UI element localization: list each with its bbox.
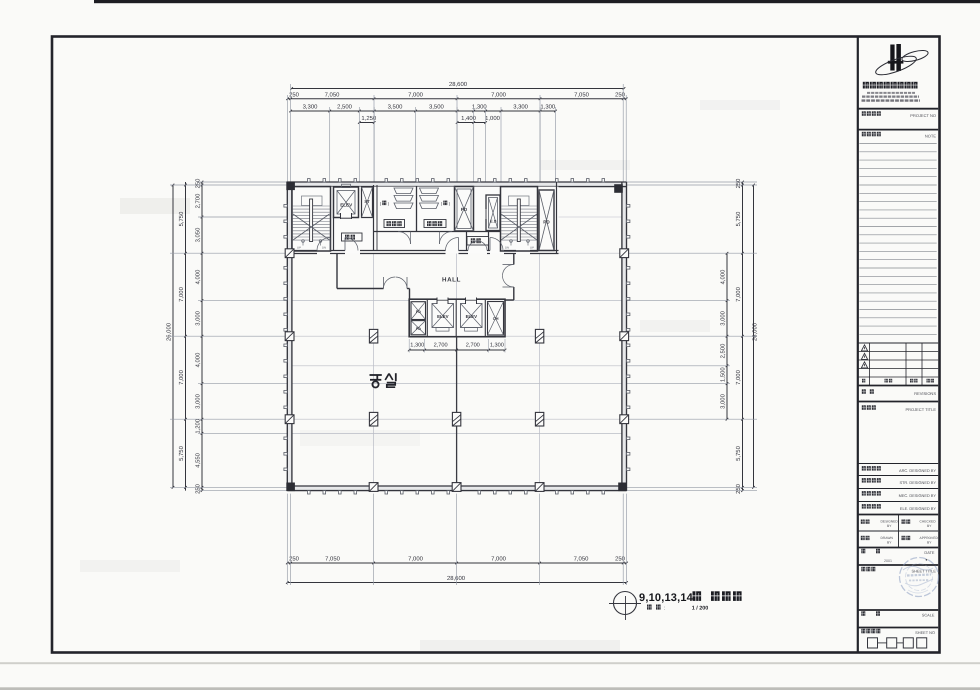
svg-text:PROJECT TITLE: PROJECT TITLE — [905, 407, 936, 412]
svg-text:DESIGNED: DESIGNED — [881, 520, 899, 524]
svg-text:2,500: 2,500 — [720, 343, 727, 358]
svg-text:7,050: 7,050 — [574, 91, 589, 98]
svg-text:1,250: 1,250 — [361, 115, 376, 122]
svg-text:PD: PD — [461, 207, 468, 212]
svg-text:250: 250 — [735, 178, 742, 189]
svg-text:3,000: 3,000 — [720, 393, 727, 408]
svg-text:7,000: 7,000 — [735, 286, 742, 301]
svg-text:UP: UP — [530, 246, 534, 250]
svg-text:REVISIONS: REVISIONS — [914, 391, 936, 396]
svg-text:2,700: 2,700 — [434, 343, 448, 349]
svg-text:2,700: 2,700 — [466, 343, 480, 349]
svg-text:7,000: 7,000 — [735, 369, 742, 384]
svg-text:STR. DESIGNED BY: STR. DESIGNED BY — [899, 480, 936, 485]
svg-text:4,550: 4,550 — [195, 452, 202, 467]
svg-text:250: 250 — [615, 556, 626, 563]
svg-text:UP: UP — [297, 246, 301, 250]
svg-text:1 / 200: 1 / 200 — [692, 606, 709, 612]
svg-text:ELE. DESIGNED BY: ELE. DESIGNED BY — [900, 506, 937, 511]
svg-text:250: 250 — [615, 91, 626, 98]
svg-text:7,000: 7,000 — [408, 91, 423, 98]
svg-text:2001: 2001 — [884, 559, 892, 563]
svg-text:1,000: 1,000 — [485, 115, 500, 122]
svg-text:4,000: 4,000 — [195, 352, 202, 367]
svg-text:26,000: 26,000 — [751, 322, 758, 341]
svg-text:E.D: E.D — [490, 219, 497, 223]
svg-text:3,000: 3,000 — [195, 310, 202, 325]
svg-text:5,750: 5,750 — [735, 445, 742, 460]
svg-text:1,300: 1,300 — [410, 343, 424, 349]
svg-text:ELEV: ELEV — [466, 314, 478, 319]
svg-text:5,750: 5,750 — [178, 445, 185, 460]
svg-text:7,050: 7,050 — [574, 556, 589, 563]
svg-text:PD: PD — [416, 327, 421, 331]
svg-text:ELEV: ELEV — [437, 314, 449, 319]
svg-text:250: 250 — [195, 178, 202, 189]
svg-text:3,050: 3,050 — [195, 227, 202, 242]
svg-text:SCALE: SCALE — [922, 613, 935, 618]
svg-text:7,050: 7,050 — [325, 556, 340, 563]
svg-text:1,200: 1,200 — [195, 418, 202, 433]
svg-text:1,500: 1,500 — [720, 367, 727, 382]
svg-text:250: 250 — [195, 483, 202, 494]
svg-text:5,750: 5,750 — [735, 211, 742, 226]
svg-text:CHECKED: CHECKED — [920, 520, 937, 524]
svg-text:4,000: 4,000 — [195, 269, 202, 284]
svg-text:1,300: 1,300 — [472, 104, 487, 111]
svg-text:2,500: 2,500 — [337, 104, 352, 111]
svg-text:7,000: 7,000 — [491, 556, 506, 563]
svg-text:PROJECT NO: PROJECT NO — [910, 113, 936, 118]
svg-text:DN: DN — [322, 246, 326, 250]
svg-text:3,000: 3,000 — [720, 310, 727, 325]
svg-text:ST: ST — [364, 199, 370, 204]
svg-text:DATE: DATE — [924, 550, 934, 555]
svg-text:4,000: 4,000 — [720, 269, 727, 284]
svg-text:7,000: 7,000 — [178, 369, 185, 384]
svg-text:7,000: 7,000 — [408, 556, 423, 563]
svg-text:3,300: 3,300 — [303, 104, 318, 111]
svg-text:ARC. DESIGNED BY: ARC. DESIGNED BY — [899, 468, 936, 473]
svg-text:MEC. DESIGNED BY: MEC. DESIGNED BY — [899, 493, 937, 498]
svg-text:3,500: 3,500 — [388, 104, 403, 111]
svg-text:3,500: 3,500 — [429, 104, 444, 111]
svg-text:3,300: 3,300 — [513, 104, 528, 111]
svg-text:PD: PD — [543, 220, 550, 225]
svg-text:1,300: 1,300 — [490, 343, 504, 349]
svg-text:1,300: 1,300 — [540, 104, 555, 111]
svg-text:7,000: 7,000 — [178, 286, 185, 301]
svg-text:7,000: 7,000 — [491, 91, 506, 98]
svg-text:SHEET NO: SHEET NO — [915, 630, 935, 635]
svg-text:ELEV: ELEV — [340, 202, 353, 207]
svg-text::: : — [664, 606, 665, 612]
svg-text:2,700: 2,700 — [195, 193, 202, 208]
svg-text:28,600: 28,600 — [449, 81, 468, 88]
svg-text:CH: CH — [493, 316, 499, 321]
svg-text:7,050: 7,050 — [325, 91, 340, 98]
svg-text:HALL: HALL — [442, 277, 461, 284]
svg-text:APPROVED: APPROVED — [920, 536, 939, 540]
svg-text:DRAWN: DRAWN — [881, 536, 894, 540]
svg-text:PD: PD — [416, 310, 421, 314]
svg-text:9,10,13,14: 9,10,13,14 — [639, 592, 694, 604]
svg-text:26,000: 26,000 — [166, 322, 173, 341]
svg-text:NOTE: NOTE — [925, 134, 936, 139]
svg-text:DN: DN — [505, 246, 509, 250]
svg-text:250: 250 — [735, 483, 742, 494]
svg-text:1,400: 1,400 — [461, 115, 476, 122]
svg-text:3,000: 3,000 — [195, 393, 202, 408]
svg-text:5,750: 5,750 — [178, 211, 185, 226]
